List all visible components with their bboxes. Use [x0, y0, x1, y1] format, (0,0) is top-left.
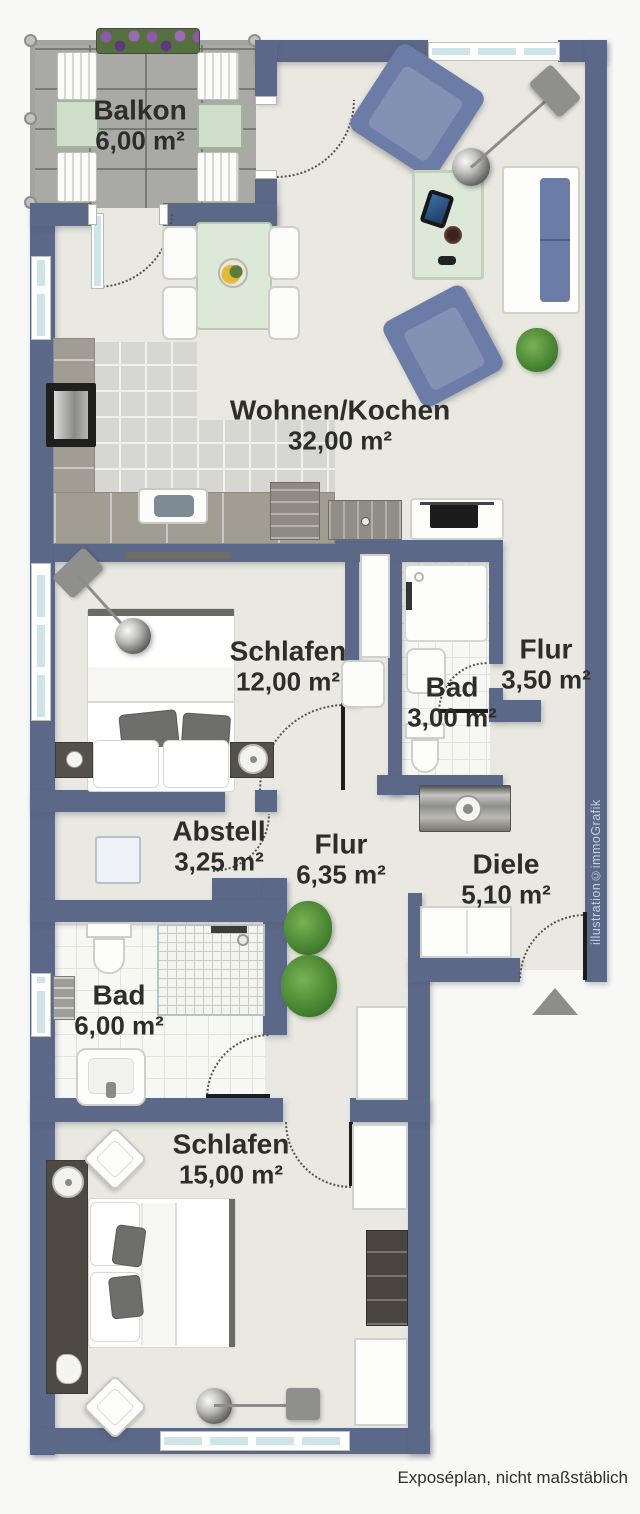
room-name: Wohnen/Kochen	[230, 395, 450, 426]
room-area: 3,50 m²	[501, 665, 591, 694]
wardrobe	[356, 1006, 408, 1100]
door-leaf-bath2	[206, 1094, 270, 1098]
decor-object	[56, 1354, 82, 1384]
door-arc-entrance	[519, 914, 640, 1046]
wardrobe	[352, 1124, 408, 1210]
wall-bedroom2-top	[350, 1098, 430, 1122]
room-label-bad2: Bad 6,00 m²	[74, 980, 164, 1039]
walk-in-shower	[157, 924, 265, 1016]
plan-caption: Exposéplan, nicht maßstäblich	[397, 1468, 628, 1488]
room-label-schlafen2: Schlafen 15,00 m²	[173, 1129, 290, 1188]
sun-lounger	[57, 52, 97, 100]
wall	[255, 790, 277, 812]
floor-lamp-shade	[286, 1388, 320, 1420]
room-area: 15,00 m²	[173, 1160, 290, 1189]
room-name: Diele	[461, 849, 551, 880]
room-label-bad1: Bad 3,00 m²	[407, 672, 497, 731]
room-label-flur2: Flur 6,35 m²	[296, 829, 386, 888]
pillow	[93, 740, 159, 788]
window	[160, 1431, 350, 1451]
entrance-arrow-icon	[532, 988, 578, 1015]
room-area: 12,00 m²	[230, 667, 347, 696]
plant	[281, 955, 337, 1017]
wall-storage-top	[30, 790, 225, 812]
room-area: 6,35 m²	[296, 860, 386, 889]
window	[31, 563, 51, 721]
kitchen-sink	[138, 488, 208, 524]
balcony-side-table	[197, 103, 243, 149]
toilet-bowl	[411, 739, 439, 773]
wall-shelf	[126, 552, 230, 559]
dining-chair	[268, 226, 300, 280]
remote	[438, 256, 456, 265]
room-area: 32,00 m²	[230, 426, 450, 455]
floor-lamp-ball	[115, 618, 151, 654]
entry-closet	[420, 906, 512, 958]
table-lamp	[52, 1166, 84, 1198]
window	[31, 973, 51, 1037]
window	[31, 256, 51, 340]
plant	[516, 328, 558, 372]
sideboard	[328, 500, 402, 540]
room-label-schlafen1: Schlafen 12,00 m²	[230, 636, 347, 695]
stove	[46, 383, 96, 447]
room-area: 3,25 m²	[172, 847, 265, 876]
door-frame	[88, 204, 97, 225]
room-area: 5,10 m²	[461, 880, 551, 909]
railing-post	[24, 34, 37, 47]
wall	[30, 203, 92, 226]
room-name: Bad	[407, 672, 497, 703]
window	[428, 42, 560, 61]
wardrobe	[354, 1338, 408, 1426]
floor-plan: Balkon 6,00 m² Wohnen/Kochen 32,00 m² Sc…	[0, 0, 640, 1514]
room-label-diele: Diele 5,10 m²	[461, 849, 551, 908]
wall-bedroom2-top	[30, 1098, 283, 1122]
room-label-balkon: Balkon 6,00 m²	[93, 95, 186, 154]
bath-shelf	[53, 976, 75, 1020]
room-label-abstell: Abstell 3,25 m²	[172, 816, 265, 875]
door-frame	[255, 170, 277, 179]
door-frame	[255, 96, 277, 105]
room-label-wohnen: Wohnen/Kochen 32,00 m²	[230, 395, 450, 454]
room-name: Flur	[296, 829, 386, 860]
dresser	[366, 1230, 408, 1326]
table-lamp	[238, 744, 268, 774]
pillow	[108, 1274, 144, 1319]
flower-box	[96, 28, 200, 54]
sun-lounger	[197, 152, 239, 202]
room-name: Bad	[74, 980, 164, 1011]
wall-bath2-top	[30, 900, 287, 922]
kitchen-cabinet	[270, 482, 320, 540]
room-name: Schlafen	[230, 636, 347, 667]
balcony-door-leaf	[92, 214, 103, 288]
door-frame	[159, 204, 168, 225]
pillow	[111, 1224, 146, 1268]
illustrator-credit: illustration©immoGrafik	[585, 775, 607, 970]
washing-machine	[419, 785, 511, 832]
room-name: Balkon	[93, 95, 186, 126]
wall	[408, 958, 430, 1454]
door-leaf-bedroom1	[341, 703, 345, 790]
room-area: 6,00 m²	[74, 1011, 164, 1040]
wall-balcony-separator	[255, 40, 277, 102]
room-area: 6,00 m²	[93, 126, 186, 155]
dining-chair	[162, 286, 198, 340]
pillow	[163, 740, 229, 788]
toilet-tank	[86, 922, 132, 938]
dining-chair	[268, 286, 300, 340]
sun-lounger	[57, 152, 97, 202]
room-label-flur1: Flur 3,50 m²	[501, 634, 591, 693]
room-area: 3,00 m²	[407, 703, 497, 732]
sofa	[502, 166, 580, 314]
room-name: Abstell	[172, 816, 265, 847]
room-name: Flur	[501, 634, 591, 665]
toilet-bowl	[93, 938, 125, 974]
nightstand	[55, 742, 93, 778]
sun-lounger	[197, 52, 239, 100]
cabinet	[360, 554, 390, 658]
storage-cabinet	[95, 836, 141, 884]
cup	[444, 226, 462, 244]
chair	[341, 660, 385, 708]
fruit-bowl	[218, 258, 248, 288]
railing-post	[24, 112, 37, 125]
shower	[404, 564, 488, 642]
wall-bath1-left	[388, 562, 402, 795]
tv-sideboard	[410, 498, 504, 540]
plant	[284, 901, 332, 955]
wall-entry-bottom	[408, 958, 520, 982]
room-name: Schlafen	[173, 1129, 290, 1160]
dining-chair	[162, 226, 198, 280]
bath-sink	[76, 1048, 146, 1106]
